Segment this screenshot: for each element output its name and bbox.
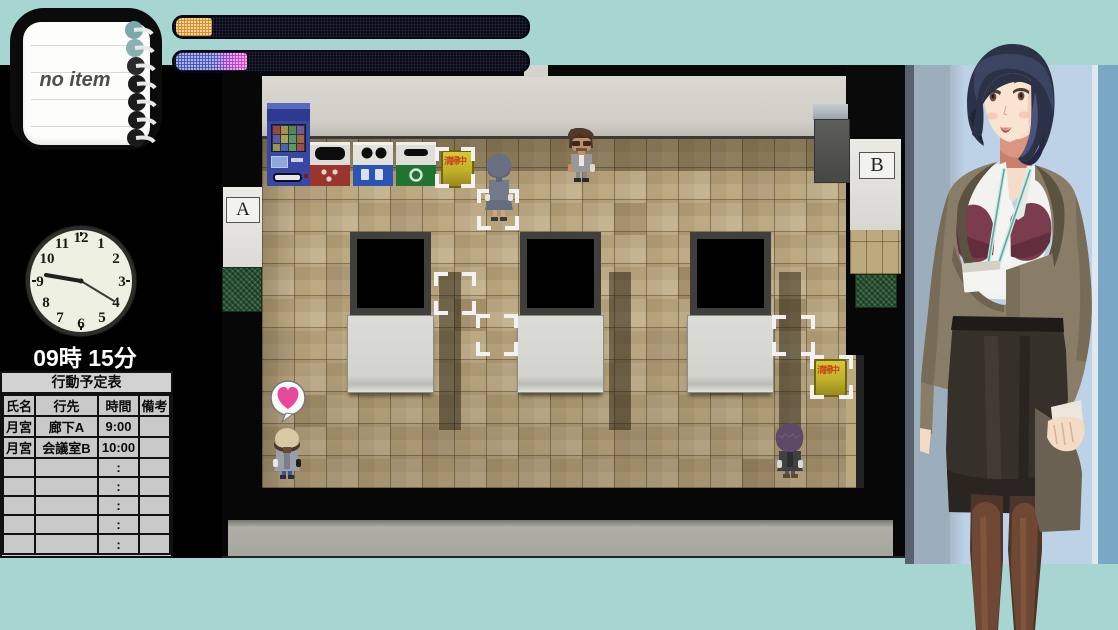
svg-text:10: 10 [40, 251, 55, 267]
svg-text:11: 11 [55, 236, 69, 252]
svg-text:7: 7 [56, 310, 64, 326]
svg-text:4: 4 [112, 295, 120, 311]
svg-text:5: 5 [98, 310, 106, 326]
svg-text:8: 8 [42, 295, 50, 311]
svg-text:3: 3 [118, 274, 126, 290]
svg-text:2: 2 [112, 251, 120, 267]
svg-text:9: 9 [36, 274, 44, 290]
svg-text:1: 1 [97, 236, 105, 252]
